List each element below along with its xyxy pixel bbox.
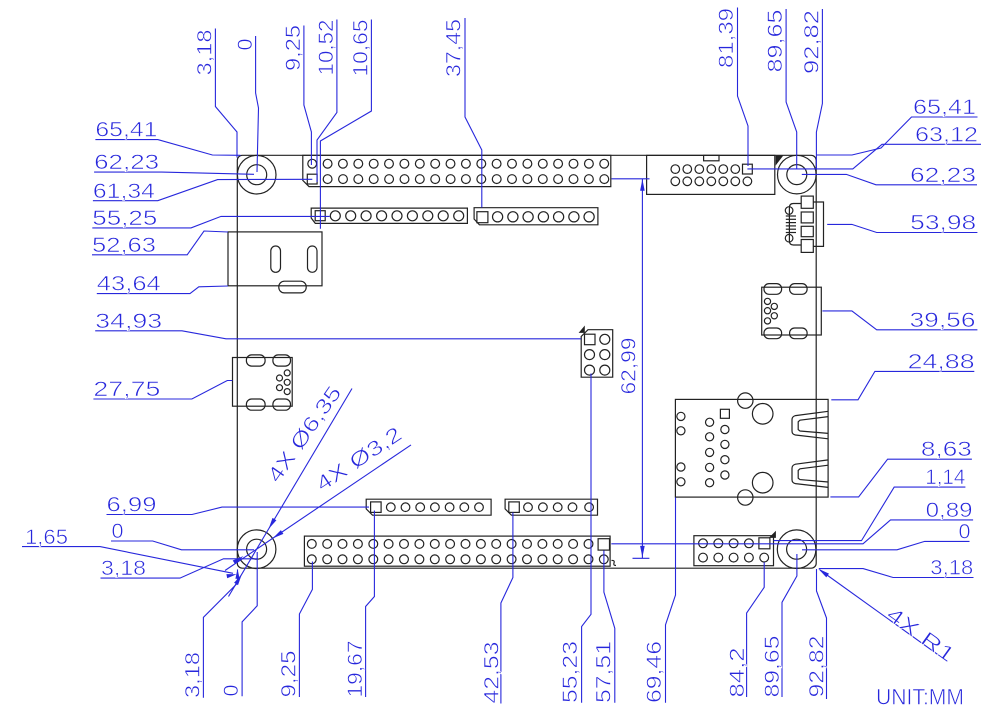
svg-text:4X Ø3,2: 4X Ø3,2 <box>312 423 406 497</box>
svg-text:39,56: 39,56 <box>910 309 976 332</box>
svg-text:92,82: 92,82 <box>801 10 824 74</box>
svg-text:3,18: 3,18 <box>194 30 217 76</box>
svg-text:3,18: 3,18 <box>930 557 973 580</box>
svg-text:1,14: 1,14 <box>925 466 965 489</box>
svg-text:6,99: 6,99 <box>107 494 157 517</box>
svg-text:8,63: 8,63 <box>921 438 972 461</box>
svg-text:63,12: 63,12 <box>915 123 978 146</box>
svg-text:62,23: 62,23 <box>910 164 976 187</box>
svg-text:42,53: 42,53 <box>480 642 503 704</box>
svg-text:62,99: 62,99 <box>618 338 641 395</box>
svg-text:53,98: 53,98 <box>910 211 976 234</box>
svg-text:10,65: 10,65 <box>350 20 373 77</box>
svg-text:10,52: 10,52 <box>315 20 338 76</box>
svg-text:0: 0 <box>220 685 243 697</box>
svg-text:84,2: 84,2 <box>726 648 749 698</box>
svg-text:69,46: 69,46 <box>643 641 666 703</box>
svg-text:62,23: 62,23 <box>94 151 159 174</box>
svg-text:55,23: 55,23 <box>559 641 582 703</box>
svg-text:3,18: 3,18 <box>181 652 204 698</box>
svg-text:89,65: 89,65 <box>761 636 784 698</box>
svg-text:43,64: 43,64 <box>97 273 161 296</box>
svg-text:0,89: 0,89 <box>926 499 973 522</box>
svg-text:19,67: 19,67 <box>344 641 367 698</box>
svg-text:92,82: 92,82 <box>805 636 828 698</box>
svg-text:89,65: 89,65 <box>764 10 787 73</box>
svg-text:34,93: 34,93 <box>95 310 162 333</box>
svg-text:1,65: 1,65 <box>25 526 68 549</box>
svg-text:UNIT:MM: UNIT:MM <box>876 685 964 707</box>
svg-text:52,63: 52,63 <box>92 234 156 257</box>
svg-text:61,34: 61,34 <box>93 180 155 203</box>
svg-text:3,18: 3,18 <box>101 557 146 580</box>
svg-text:9,25: 9,25 <box>282 25 305 71</box>
svg-text:57,51: 57,51 <box>592 641 615 703</box>
svg-text:9,25: 9,25 <box>277 651 300 698</box>
svg-text:55,25: 55,25 <box>92 207 157 230</box>
svg-text:0: 0 <box>234 39 257 51</box>
svg-text:4X R1: 4X R1 <box>882 603 959 667</box>
svg-text:0: 0 <box>959 520 971 543</box>
svg-text:37,45: 37,45 <box>443 19 466 77</box>
svg-text:81,39: 81,39 <box>715 8 738 68</box>
svg-text:65,41: 65,41 <box>95 119 157 142</box>
svg-text:24,88: 24,88 <box>908 350 975 373</box>
svg-text:65,41: 65,41 <box>913 96 976 119</box>
svg-text:27,75: 27,75 <box>93 378 160 401</box>
svg-text:0: 0 <box>112 520 124 543</box>
